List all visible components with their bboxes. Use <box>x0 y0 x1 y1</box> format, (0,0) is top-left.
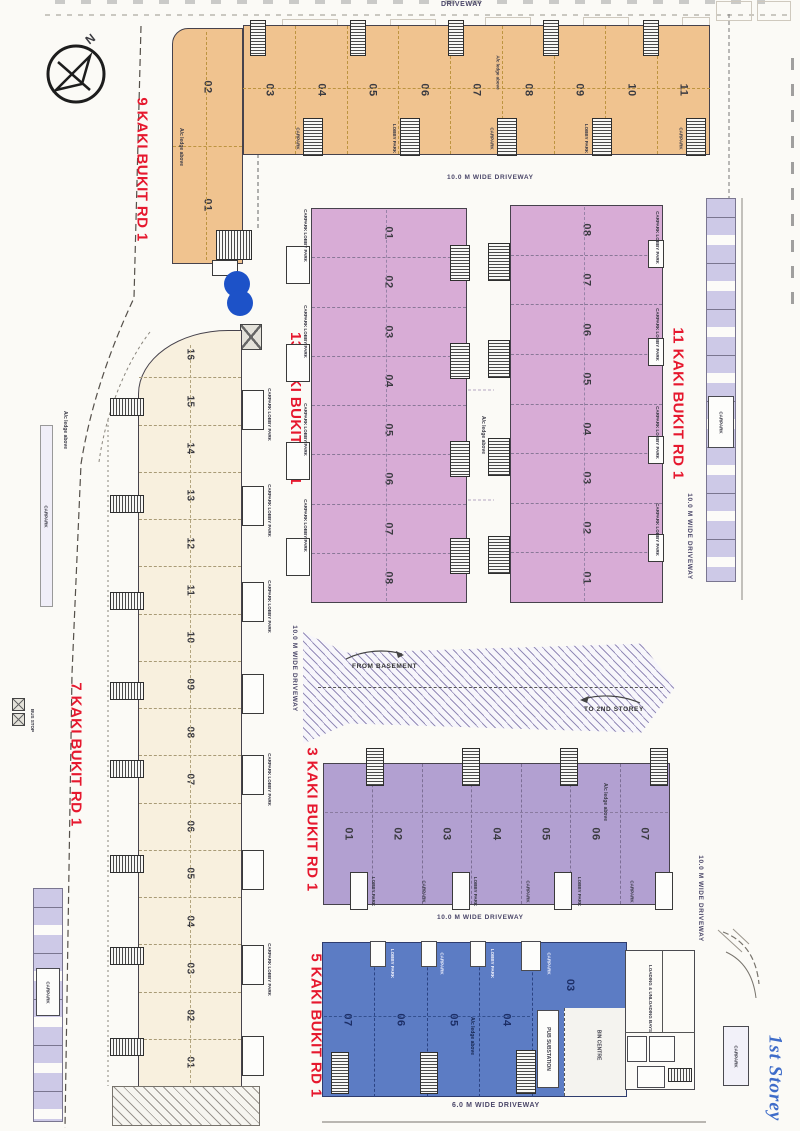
lobby-box <box>242 582 264 622</box>
carpark-label: CARPARK <box>524 872 532 910</box>
annex-room <box>637 1066 665 1088</box>
unit-cell: 04 <box>312 356 466 405</box>
ac-ledge-label: A/c ledge above <box>176 103 186 191</box>
driveway-6m-label: 6.0 M WIDE DRIVEWAY <box>452 1102 540 1109</box>
driveway-10m-label-vertical: 10.0 M WIDE DRIVEWAY <box>288 618 300 718</box>
carpark-label: CARPARK <box>677 120 685 156</box>
carpark-lobby-label: CARPARK LOBBY PARK <box>265 488 274 532</box>
unit-cell: 03 <box>312 307 466 356</box>
staircase-core <box>350 20 366 56</box>
unit-number: 01 <box>581 571 593 584</box>
block-11: 0807060504030201 <box>510 205 663 603</box>
unit-cell: 07 <box>511 255 662 305</box>
annex-partition <box>662 950 663 1032</box>
unit-number: 06 <box>395 1013 407 1026</box>
unit-number: 07 <box>342 1013 354 1026</box>
block-7-name: 7 KAKI BUKIT RD 1 <box>63 685 89 823</box>
lobby-box <box>242 486 264 526</box>
unit-number: 02 <box>383 276 395 289</box>
staircase-core <box>450 441 470 477</box>
unit-cell: 06 <box>312 454 466 503</box>
block-11-name: 11 KAKI BUKIT RD 1 <box>665 328 691 478</box>
carpark-lobby-label: CARPARK LOBBY PARK <box>652 311 662 357</box>
carpark-lobby-label: CARPARK LOBBY PARK <box>300 502 310 548</box>
ac-ledge-label: A/c ledge above <box>60 388 70 472</box>
lobby-staircase <box>400 118 420 156</box>
lobby-box <box>242 755 264 795</box>
staircase-core <box>516 1050 536 1094</box>
unit-cell: 05 <box>511 354 662 404</box>
staircase-core <box>250 20 266 56</box>
unit-number: 02 <box>392 827 404 840</box>
hatched-area <box>112 1086 260 1126</box>
ramp-from-basement-label: FROM BASEMENT <box>352 663 417 670</box>
staircase-core <box>110 760 144 778</box>
lobby-park-label: LOBBY PARK <box>576 872 584 910</box>
carpark-box-bottom-right: CARPARK <box>723 1026 749 1086</box>
bin-centre-label: BIN CENTRE <box>592 1014 604 1076</box>
carpark-stall-outline <box>716 1 752 21</box>
carpark-lobby-label: CARPARK LOBBY PARK <box>265 584 274 628</box>
ac-ledge-label: A/c ledge above <box>466 1006 478 1066</box>
carpark-lobby-label: CARPARK LOBBY PARK <box>652 214 662 260</box>
carpark-lobby-label: CARPARK LOBBY PARK <box>652 409 662 455</box>
staircase-core <box>488 243 510 281</box>
unit-number: 08 <box>383 571 395 584</box>
compass-icon <box>44 40 108 106</box>
lobby-box <box>350 872 368 910</box>
unit-number: 07 <box>471 83 483 96</box>
lobby-box <box>242 1036 264 1076</box>
unit-number: 05 <box>447 1013 459 1026</box>
block-5-unit-03: 03 <box>560 968 580 1002</box>
unit-number: 04 <box>581 422 593 435</box>
lobby-staircase <box>497 118 517 156</box>
staircase-core <box>668 1068 692 1082</box>
unit-number: 05 <box>383 424 395 437</box>
north-compass <box>44 40 108 106</box>
staircase-core <box>110 398 144 416</box>
unit-number: 05 <box>540 827 552 840</box>
unit-number: 03 <box>441 827 453 840</box>
lobby-box <box>452 872 470 910</box>
carpark-label: CARPARK <box>545 943 554 983</box>
staircase-core <box>450 538 470 574</box>
lobby-staircase <box>686 118 706 156</box>
lobby-box <box>242 850 264 890</box>
staircase-core <box>110 947 144 965</box>
ac-ledge-label: A/c ledge above <box>599 772 611 832</box>
carpark-strip-label-box: CARPARK <box>708 396 734 448</box>
handwritten-storey-note: 1st Storey <box>756 1026 792 1130</box>
staircase-core <box>110 1038 144 1056</box>
ramp-to-2nd-storey-label: TO 2ND STOREY <box>584 706 644 713</box>
carpark-label: CARPARK <box>420 872 428 910</box>
unit-number: 11 <box>678 84 690 97</box>
staircase-core <box>448 20 464 56</box>
lobby-staircase <box>303 118 323 156</box>
lobby-park-label: LOBBY PARK <box>583 120 591 156</box>
staircase-core <box>643 20 659 56</box>
block-13: 0102030405060708 <box>311 208 467 603</box>
lobby-box <box>242 674 264 714</box>
carpark-lobby-label: CARPARK LOBBY PARK <box>300 406 310 452</box>
staircase-core <box>366 748 384 786</box>
unit-cell: 06 <box>511 304 662 354</box>
unit-cell: 08 <box>312 553 466 602</box>
staircase-core <box>488 536 510 574</box>
unit-number: 10 <box>626 83 638 96</box>
staircase-core <box>331 1052 349 1094</box>
lobby-park-label: LOBBY PARK <box>472 872 480 910</box>
blue-marker-dot <box>227 290 253 316</box>
staircase-core <box>650 748 668 786</box>
staircase-core <box>560 748 578 786</box>
block-5-name: 5 KAKI BUKIT RD 1 <box>303 958 329 1092</box>
unit-cell: 04 <box>511 404 662 454</box>
bus-stop-label: BUS STOP <box>27 696 37 744</box>
ramp-arrow-to <box>576 690 644 706</box>
carpark-lobby-label: CARPARK LOBBY PARK <box>300 308 310 354</box>
block-7-centerline <box>190 345 191 1083</box>
lobby-box <box>554 872 572 910</box>
block-9-wing-centerline <box>206 32 207 260</box>
unit-number: 06 <box>383 473 395 486</box>
carpark-lobby-label: CARPARK LOBBY PARK <box>652 506 662 552</box>
ramp-centerline <box>318 687 663 688</box>
lobby-park-label: LOBBY PARK <box>488 943 497 983</box>
lobby-box <box>421 941 437 967</box>
lobby-box <box>470 941 486 967</box>
driveway-10m-label: 10.0 M WIDE DRIVEWAY <box>447 174 534 181</box>
lobby-staircase <box>216 230 252 260</box>
lobby-box <box>655 872 673 910</box>
driveway-10m-label-vertical: 10.0 M WIDE DRIVEWAY <box>683 486 695 586</box>
loading-bays-label: LOADING & UNLOADING BAYS <box>644 956 658 1040</box>
staircase-core <box>110 682 144 700</box>
unit-number: 08 <box>522 83 534 96</box>
unit-number: 04 <box>490 827 502 840</box>
unit-cell: 01 <box>511 552 662 602</box>
unit-cell: 05 <box>312 405 466 454</box>
carpark-lobby-label: CARPARK LOBBY PARK <box>265 392 274 436</box>
unit-cell: 08 <box>511 206 662 255</box>
unit-cell: 03 <box>511 453 662 503</box>
site-plan-document: N DRIVEWAY 0201 030405060708091011 A/c l… <box>0 0 800 1131</box>
unit-number: 02 <box>202 81 214 94</box>
staircase-core <box>488 438 510 476</box>
ac-ledge-label: A/c ledge above <box>493 40 503 104</box>
block-3-name: 3 KAKI BUKIT RD 1 <box>300 756 324 882</box>
unit-number: 07 <box>639 827 651 840</box>
unit-number: 05 <box>581 373 593 386</box>
carpark-label: CARPARK <box>294 120 302 156</box>
carpark-lobby-label: CARPARK LOBBY PARK <box>265 757 274 801</box>
block-11-centerline <box>584 207 585 601</box>
staircase-core <box>450 343 470 379</box>
staircase-core <box>450 245 470 281</box>
lobby-park-label: LOBBY PARK <box>370 872 378 910</box>
unit-number: 09 <box>574 83 586 96</box>
ramp-arrow-from <box>344 646 410 662</box>
crossed-box <box>240 324 262 350</box>
unit-number: 08 <box>581 224 593 237</box>
annex-partition <box>625 1032 695 1033</box>
unit-cell: 02 <box>511 503 662 553</box>
carpark-strip-right <box>706 198 736 582</box>
unit-cell: 07 <box>312 504 466 553</box>
unit-number: 01 <box>383 227 395 240</box>
block-5-centerline <box>324 1016 530 1017</box>
unit-number: 02 <box>581 521 593 534</box>
staircase-core <box>488 340 510 378</box>
staircase-core <box>110 495 144 513</box>
unit-number: 01 <box>202 198 214 211</box>
unit-number: 04 <box>500 1013 512 1026</box>
lobby-box <box>521 941 541 971</box>
unit-number: 07 <box>383 522 395 535</box>
driveway-10m-label-vertical: 10.0 M WIDE DRIVEWAY <box>694 850 706 946</box>
annex-room <box>649 1036 675 1062</box>
driveway-label-top: DRIVEWAY <box>441 1 483 8</box>
lobby-box <box>242 390 264 430</box>
unit-number: 05 <box>367 83 379 96</box>
staircase-core <box>543 20 559 56</box>
carpark-label: CARPARK <box>628 872 636 910</box>
unit-cell: 01 <box>312 209 466 257</box>
unit-number: 03 <box>581 472 593 485</box>
unit-number: 04 <box>315 83 327 96</box>
block-9-centerline <box>243 88 710 89</box>
unit-number: 01 <box>342 827 354 840</box>
staircase-core <box>110 855 144 873</box>
unit-number: 04 <box>383 374 395 387</box>
unit-number: 06 <box>581 323 593 336</box>
carpark-strip-left-upper: CARPARK <box>40 425 53 607</box>
carpark-label: CARPARK <box>488 120 496 156</box>
bus-stop-icon <box>12 698 25 711</box>
block-9-name: 9 KAKI BUKIT RD 1 <box>130 80 154 258</box>
unit-number: 03 <box>263 83 275 96</box>
unit-number: 06 <box>419 83 431 96</box>
unit-number: 03 <box>383 325 395 338</box>
carpark-stall-outline <box>757 1 791 21</box>
lobby-box <box>370 941 386 967</box>
lobby-staircase <box>592 118 612 156</box>
pub-substation: PUB SUBSTATION <box>537 1010 559 1088</box>
carpark-lobby-label: CARPARK LOBBY PARK <box>300 212 310 258</box>
driveway-10m-label: 10.0 M WIDE DRIVEWAY <box>437 914 524 921</box>
carpark-lobby-label: CARPARK LOBBY PARK <box>265 947 274 991</box>
annex-room <box>627 1036 647 1062</box>
staircase-core <box>110 592 144 610</box>
carpark-strip-label-box: CARPARK <box>36 968 60 1016</box>
staircase-core <box>462 748 480 786</box>
staircase-core <box>420 1052 438 1094</box>
lobby-park-label: LOBBY PARK <box>388 943 397 983</box>
lobby-park-label: LOBBY PARK <box>391 120 399 156</box>
block-13-centerline <box>386 210 387 601</box>
bus-stop-icon <box>12 713 25 726</box>
unit-cell: 02 <box>312 257 466 306</box>
lobby-box <box>242 945 264 985</box>
unit-number: 07 <box>581 273 593 286</box>
carpark-label: CARPARK <box>438 943 447 983</box>
block-3-centerline <box>325 812 668 813</box>
